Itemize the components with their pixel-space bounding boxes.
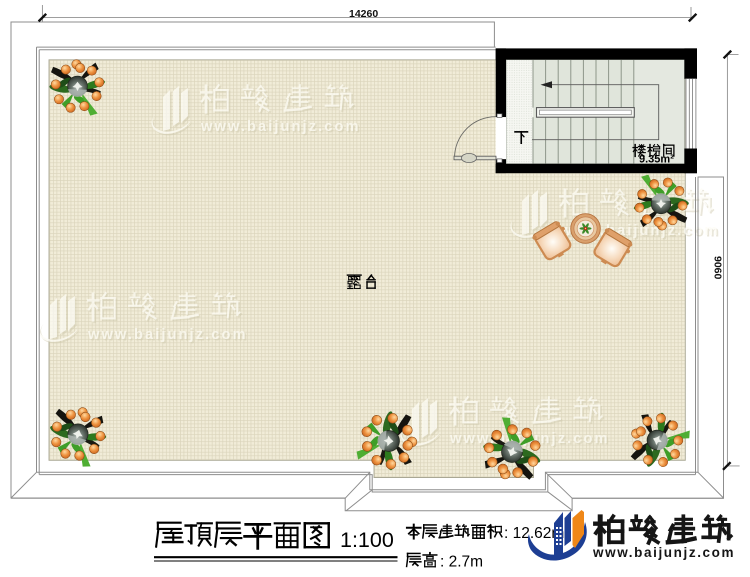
svg-text:9.35m²: 9.35m² bbox=[639, 154, 674, 166]
svg-text:www.baijunjz.com: www.baijunjz.com bbox=[592, 545, 735, 560]
svg-text:: 2.7m: : 2.7m bbox=[440, 554, 483, 571]
svg-text:www.baijunjz.com: www.baijunjz.com bbox=[200, 119, 361, 135]
svg-text:www.baijunjz.com: www.baijunjz.com bbox=[87, 327, 248, 343]
svg-text:1:100: 1:100 bbox=[340, 528, 394, 552]
svg-text:14260: 14260 bbox=[349, 8, 378, 20]
svg-text:9060: 9060 bbox=[712, 256, 724, 280]
